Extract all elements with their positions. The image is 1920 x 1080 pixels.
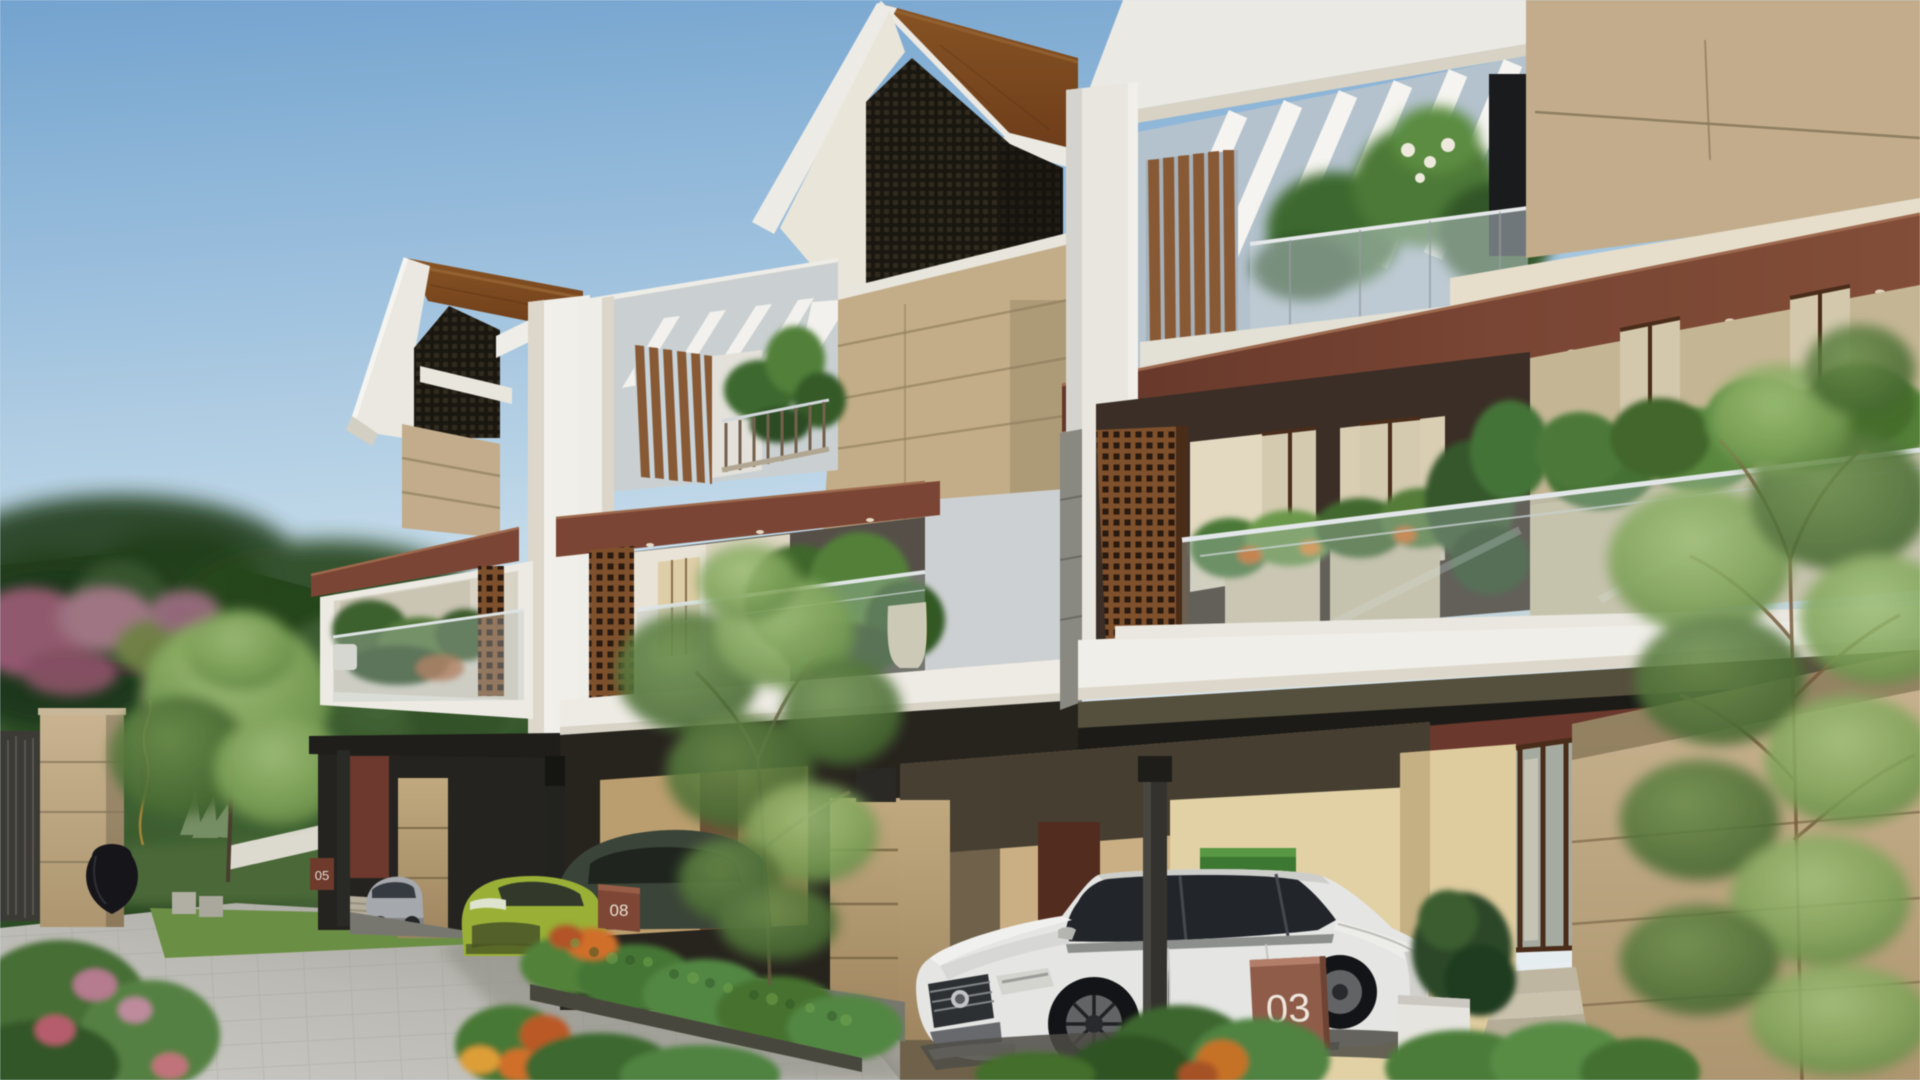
svg-text:08: 08 bbox=[610, 901, 629, 920]
svg-text:05: 05 bbox=[315, 868, 329, 883]
